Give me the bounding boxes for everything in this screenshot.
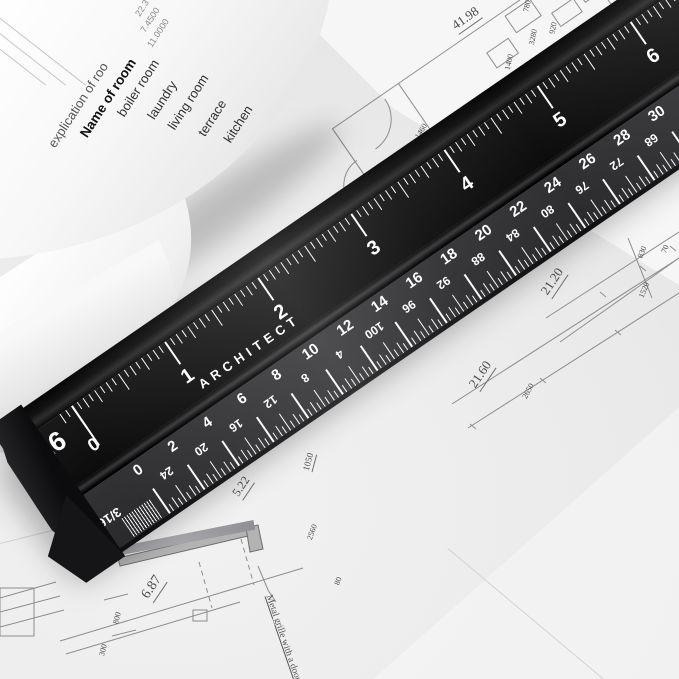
product-photo-scene: 41.98 65.49 3280 1400 920 380 780 3700 1… xyxy=(0,0,679,679)
table-column-line xyxy=(0,0,334,260)
rolled-sheet-table: explication of roo Name of room boiler r… xyxy=(0,0,334,260)
